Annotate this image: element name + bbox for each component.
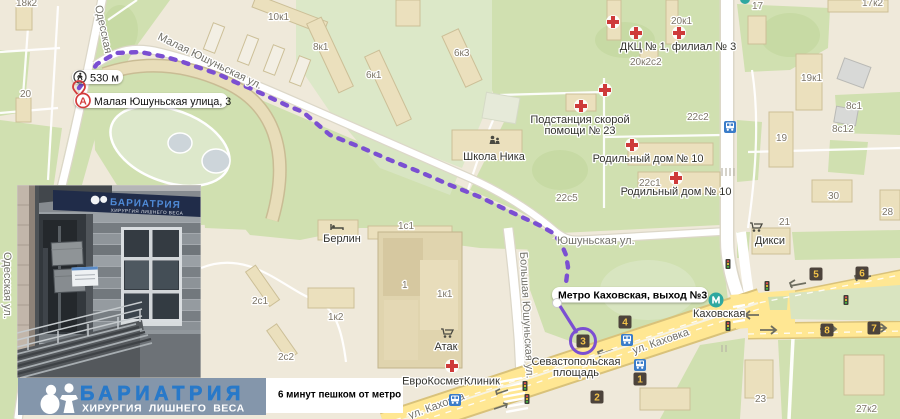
svg-text:27к2: 27к2 [856, 404, 877, 415]
svg-text:2с2: 2с2 [278, 352, 295, 363]
svg-text:1: 1 [402, 280, 408, 291]
svg-text:17к2: 17к2 [862, 0, 883, 9]
svg-text:23: 23 [755, 394, 767, 405]
svg-text:20: 20 [20, 89, 32, 100]
svg-text:Юшуньская ул.: Юшуньская ул. [557, 235, 635, 247]
svg-text:8с1: 8с1 [846, 101, 863, 112]
svg-text:21: 21 [779, 217, 791, 228]
svg-text:17: 17 [752, 1, 764, 12]
svg-text:Одесская ул.: Одесская ул. [1, 252, 13, 319]
svg-text:18к2: 18к2 [16, 0, 37, 9]
svg-text:6к3: 6к3 [454, 48, 470, 59]
svg-text:Родильный дом № 10: Родильный дом № 10 [621, 186, 732, 198]
svg-text:7: 7 [871, 324, 877, 335]
svg-text:Дикси: Дикси [755, 235, 785, 247]
svg-text:2: 2 [594, 393, 600, 404]
svg-text:530 м: 530 м [90, 73, 119, 85]
svg-text:площадь: площадь [553, 367, 599, 379]
svg-text:1: 1 [637, 375, 643, 386]
svg-text:4: 4 [622, 318, 628, 329]
svg-text:Берлин: Берлин [323, 233, 361, 245]
svg-text:ЕвроКосметКлиник: ЕвроКосметКлиник [402, 376, 500, 388]
svg-text:3: 3 [580, 337, 586, 348]
svg-text:2с1: 2с1 [252, 296, 269, 307]
svg-text:19к1: 19к1 [801, 73, 822, 84]
svg-text:5: 5 [813, 270, 819, 281]
svg-text:28: 28 [882, 207, 894, 218]
svg-text:ХИРУРГИЯ ЛИШНЕГО ВЕСА: ХИРУРГИЯ ЛИШНЕГО ВЕСА [82, 403, 245, 415]
svg-text:22с5: 22с5 [556, 193, 578, 204]
svg-text:8с12: 8с12 [832, 124, 854, 135]
svg-text:20к2с2: 20к2с2 [630, 57, 662, 68]
svg-text:22с2: 22с2 [687, 112, 709, 123]
svg-text:6 минут пешком от метро: 6 минут пешком от метро [278, 390, 401, 401]
svg-text:6к1: 6к1 [366, 70, 382, 81]
svg-text:Школа Ника: Школа Ника [463, 151, 526, 163]
svg-text:1к1: 1к1 [437, 289, 453, 300]
svg-text:30: 30 [828, 191, 840, 202]
svg-text:1с1: 1с1 [398, 221, 415, 232]
svg-text:помощи № 23: помощи № 23 [544, 125, 615, 137]
svg-text:1к2: 1к2 [328, 312, 344, 323]
svg-text:20к1: 20к1 [671, 16, 692, 27]
svg-text:Малая Юшуньская улица, 3: Малая Юшуньская улица, 3 [94, 96, 231, 108]
svg-text:10к1: 10к1 [268, 12, 289, 23]
svg-text:8к1: 8к1 [313, 42, 329, 53]
svg-text:А: А [79, 96, 87, 108]
svg-text:6: 6 [859, 269, 865, 280]
svg-text:Атак: Атак [435, 341, 458, 353]
svg-text:ДКЦ № 1, филиал № 3: ДКЦ № 1, филиал № 3 [620, 41, 736, 53]
svg-text:Метро Каховская, выход №3: Метро Каховская, выход №3 [558, 290, 707, 302]
svg-text:Родильный дом № 10: Родильный дом № 10 [593, 153, 704, 165]
svg-text:8: 8 [824, 326, 830, 337]
svg-text:Каховская: Каховская [693, 308, 745, 320]
svg-text:19: 19 [776, 133, 788, 144]
